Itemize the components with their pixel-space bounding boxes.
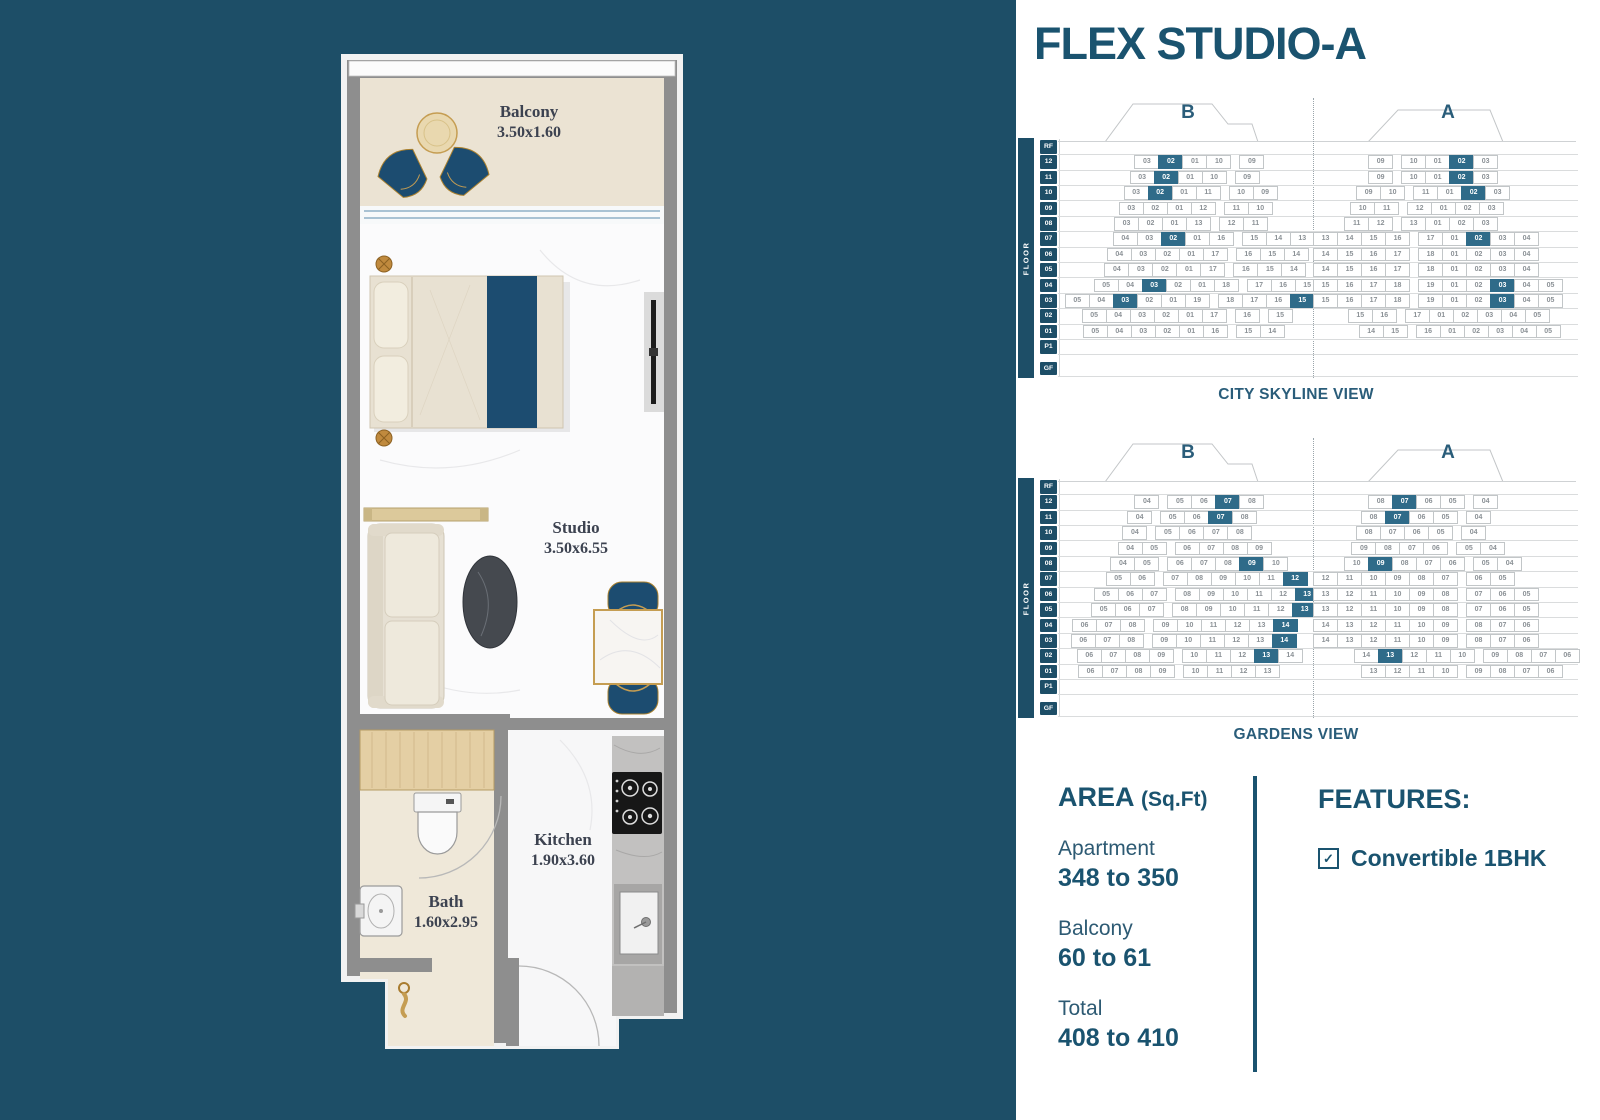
unit-cell: 11 <box>1244 603 1269 617</box>
unit-cell: 05 <box>1538 294 1563 308</box>
unit-cell: 12 <box>1225 619 1250 633</box>
unit-cell: 08 <box>1466 634 1491 648</box>
tower-b-units-row: 050607080910111213 <box>1094 588 1319 602</box>
unit-cell: 14 <box>1266 232 1291 246</box>
unit-cell: 12 <box>1337 588 1362 602</box>
unit-cell: 12 <box>1361 619 1386 633</box>
unit-cell: 06 <box>1404 526 1429 540</box>
unit-cell: 02 <box>1453 309 1478 323</box>
unit-cell: 03 <box>1490 248 1515 262</box>
tower-a-units-row: 1415160102030405 <box>1359 325 1560 339</box>
unit-cell: 15 <box>1236 325 1261 339</box>
area-heading: AREA (Sq.Ft) <box>1058 782 1208 813</box>
unit-cell: 01 <box>1440 325 1465 339</box>
unit-gap <box>1409 263 1418 277</box>
floor-label: 04 <box>1040 279 1057 293</box>
unit-gap <box>1392 171 1401 185</box>
tower-b-units-row: 030201121110 <box>1119 202 1272 216</box>
unit-cell: 04 <box>1512 325 1537 339</box>
tower-a-units-row: 091011010203 <box>1356 186 1509 200</box>
tower-b-units-row: 0403020117161514 <box>1104 263 1305 277</box>
floor-label: 10 <box>1040 186 1057 200</box>
unit-cell-highlighted: 09 <box>1368 557 1393 571</box>
unit-gap <box>1227 248 1236 262</box>
unit-cell: 05 <box>1456 542 1481 556</box>
unit-cell-highlighted: 03 <box>1113 294 1138 308</box>
unit-gap <box>1474 649 1483 663</box>
unit-cell: 08 <box>1466 619 1491 633</box>
unit-cell: 04 <box>1106 309 1131 323</box>
unit-cell: 07 <box>1095 634 1120 648</box>
unit-cell: 17 <box>1200 263 1225 277</box>
floor-gridline <box>1058 694 1578 695</box>
unit-cell: 12 <box>1407 202 1432 216</box>
unit-cell: 03 <box>1114 217 1139 231</box>
unit-cell: 11 <box>1243 217 1268 231</box>
tower-a-units-row: 1312111009080706 <box>1361 665 1562 679</box>
unit-cell-highlighted: 02 <box>1161 232 1186 246</box>
unit-cell: 16 <box>1361 248 1386 262</box>
unit-cell: 01 <box>1172 186 1197 200</box>
tower-b-units-row: 030201111009 <box>1124 186 1277 200</box>
unit-cell: 03 <box>1490 263 1515 277</box>
unit-cell: 08 <box>1227 526 1252 540</box>
unit-cell-highlighted: 02 <box>1154 171 1179 185</box>
unit-cell-highlighted: 02 <box>1466 232 1491 246</box>
unit-cell: 01 <box>1425 171 1450 185</box>
unit-cell: 07 <box>1514 665 1539 679</box>
floor-label: 02 <box>1040 309 1057 323</box>
unit-cell: 09 <box>1483 649 1508 663</box>
unit-cell: 03 <box>1131 325 1156 339</box>
unit-cell: 17 <box>1247 279 1272 293</box>
tower-a-units-row: 141312111009080706 <box>1354 649 1579 663</box>
unit-cell: 10 <box>1361 572 1386 586</box>
unit-cell: 06 <box>1078 665 1103 679</box>
unit-gap <box>1392 155 1401 169</box>
unit-cell: 12 <box>1385 665 1410 679</box>
balcony-table <box>417 113 457 153</box>
unit-gap <box>1452 526 1461 540</box>
unit-cell: 07 <box>1399 542 1424 556</box>
closet <box>360 730 494 790</box>
unit-cell: 13 <box>1290 232 1315 246</box>
tower-b-units-row: 0506070809101112 <box>1106 572 1307 586</box>
unit-cell: 14 <box>1337 232 1362 246</box>
unit-cell: 10 <box>1248 202 1273 216</box>
unit-cell: 06 <box>1538 665 1563 679</box>
area-item-label: Apartment <box>1058 837 1208 861</box>
unit-cell: 09 <box>1385 572 1410 586</box>
floor-label: 02 <box>1040 649 1057 663</box>
unit-cell: 07 <box>1466 603 1491 617</box>
unit-gap <box>1457 511 1466 525</box>
floor-label: 08 <box>1040 217 1057 231</box>
tower-b-units-row: 030201131211 <box>1114 217 1267 231</box>
area-heading-text: AREA <box>1058 782 1134 812</box>
feature-label: Convertible 1BHK <box>1351 845 1547 872</box>
floor-axis-label: FLOOR <box>1022 581 1031 615</box>
unit-cell: 12 <box>1191 202 1216 216</box>
unit-cell: 06 <box>1071 634 1096 648</box>
unit-gap <box>1163 603 1172 617</box>
pillow <box>374 356 408 422</box>
features-heading: FEATURES: <box>1318 784 1547 815</box>
tower-a-units-row: 0910010203 <box>1368 171 1497 185</box>
unit-cell: 07 <box>1101 649 1126 663</box>
unit-cell: 09 <box>1466 665 1491 679</box>
area-item-total: Total 408 to 410 <box>1058 997 1208 1053</box>
unit-cell: 10 <box>1385 603 1410 617</box>
unit-cell: 16 <box>1209 232 1234 246</box>
unit-cell: 13 <box>1249 619 1274 633</box>
unit-cell: 10 <box>1229 186 1254 200</box>
unit-gap <box>1409 294 1418 308</box>
kitchen-dims: 1.90x3.60 <box>531 852 595 869</box>
unit-gap <box>1210 217 1219 231</box>
unit-cell: 10 <box>1183 665 1208 679</box>
stacking-diagram: BAFLOORRF1204050607080807060504110405060… <box>1016 480 1596 750</box>
unit-cell: 14 <box>1359 325 1384 339</box>
unit-cell: 04 <box>1480 542 1505 556</box>
unit-gap <box>1259 309 1268 323</box>
unit-cell: 10 <box>1380 186 1405 200</box>
stacking-diagram: BAFLOORRF1203020110090910010203110302011… <box>1016 140 1596 410</box>
section-divider <box>1253 776 1257 1072</box>
unit-cell: 03 <box>1124 186 1149 200</box>
unit-cell: 03 <box>1119 202 1144 216</box>
unit-gap <box>1230 155 1239 169</box>
unit-cell: 11 <box>1344 217 1369 231</box>
bed-runner <box>487 276 537 428</box>
unit-cell: 05 <box>1525 309 1550 323</box>
unit-cell: 09 <box>1239 155 1264 169</box>
unit-cell: 09 <box>1409 588 1434 602</box>
unit-cell: 04 <box>1113 232 1138 246</box>
page-title: FLEX STUDIO-A <box>1034 18 1366 70</box>
tower-a-units-row: 0807060504 <box>1368 495 1497 509</box>
unit-cell: 08 <box>1490 665 1515 679</box>
unit-cell: 04 <box>1466 511 1491 525</box>
unit-cell: 08 <box>1232 511 1257 525</box>
unit-gap <box>1227 325 1236 339</box>
unit-cell: 16 <box>1266 294 1291 308</box>
balcony-label: Balcony <box>500 102 559 121</box>
tower-label: A <box>1420 102 1476 124</box>
unit-gap <box>1158 557 1167 571</box>
unit-gap <box>1226 309 1235 323</box>
unit-cell: 10 <box>1450 649 1475 663</box>
unit-cell: 06 <box>1440 557 1465 571</box>
sconce-icon <box>376 256 392 272</box>
unit-gap <box>1209 294 1218 308</box>
unit-cell: 02 <box>1464 325 1489 339</box>
unit-cell: 13 <box>1313 232 1338 246</box>
tower-b-units-row: 050607080910111213 <box>1091 603 1316 617</box>
unit-cell: 04 <box>1110 557 1135 571</box>
unit-cell: 06 <box>1466 572 1491 586</box>
unit-cell: 14 <box>1260 325 1285 339</box>
unit-cell: 10 <box>1344 557 1369 571</box>
unit-gap <box>1464 495 1473 509</box>
unit-cell: 09 <box>1196 603 1221 617</box>
unit-cell: 01 <box>1178 309 1203 323</box>
unit-cell: 03 <box>1137 232 1162 246</box>
area-item-value: 408 to 410 <box>1058 1024 1208 1053</box>
unit-cell: 17 <box>1418 232 1443 246</box>
unit-cell: 04 <box>1127 511 1152 525</box>
unit-cell: 11 <box>1259 572 1284 586</box>
unit-cell: 05 <box>1514 603 1539 617</box>
grid-left-line <box>1059 479 1060 716</box>
area-item-apartment: Apartment 348 to 350 <box>1058 837 1208 893</box>
tower-a-units-row: 141516171801020304 <box>1313 263 1538 277</box>
tower-a-units-row: 111213010203 <box>1344 217 1497 231</box>
unit-cell: 04 <box>1089 294 1114 308</box>
unit-cell: 01 <box>1179 325 1204 339</box>
unit-cell: 12 <box>1231 665 1256 679</box>
unit-cell: 14 <box>1313 619 1338 633</box>
unit-cell: 10 <box>1409 619 1434 633</box>
unit-cell: 09 <box>1368 171 1393 185</box>
unit-cell: 16 <box>1337 294 1362 308</box>
tower-b-units-row: 050403020118171615 <box>1094 279 1319 293</box>
diagram-caption: GARDENS VIEW <box>1036 726 1556 744</box>
unit-cell: 08 <box>1172 603 1197 617</box>
tower-a-units-row: 1516170102030405 <box>1348 309 1549 323</box>
unit-cell: 02 <box>1155 325 1180 339</box>
unit-cell-highlighted: 03 <box>1490 294 1515 308</box>
unit-cell: 04 <box>1118 279 1143 293</box>
unit-cell: 01 <box>1179 248 1204 262</box>
unit-gap <box>1398 202 1407 216</box>
unit-cell: 02 <box>1166 279 1191 293</box>
unit-cell: 16 <box>1203 325 1228 339</box>
floor-label: 11 <box>1040 171 1057 185</box>
unit-cell: 08 <box>1409 572 1434 586</box>
floor-label: 01 <box>1040 665 1057 679</box>
unit-gap <box>1238 279 1247 293</box>
unit-gap <box>1457 572 1466 586</box>
unit-cell: 19 <box>1418 279 1443 293</box>
unit-cell: 11 <box>1207 665 1232 679</box>
unit-cell: 11 <box>1337 572 1362 586</box>
tower-b-units-row: 0405060708 <box>1134 495 1263 509</box>
unit-cell: 02 <box>1466 294 1491 308</box>
unit-cell: 16 <box>1236 248 1261 262</box>
tower-b-units-row: 0607080910111213 <box>1078 665 1279 679</box>
kitchen-cabinet <box>612 966 664 1016</box>
unit-cell: 06 <box>1191 495 1216 509</box>
tower-a-units-row: 131211100908070605 <box>1313 588 1538 602</box>
pillow <box>374 282 408 348</box>
unit-cell: 01 <box>1161 294 1186 308</box>
sliding-window-band <box>360 206 664 224</box>
unit-cell: 12 <box>1271 588 1296 602</box>
unit-cell: 08 <box>1356 526 1381 540</box>
unit-cell: 10 <box>1263 557 1288 571</box>
unit-gap <box>1409 248 1418 262</box>
unit-cell: 02 <box>1466 263 1491 277</box>
unit-cell: 01 <box>1178 171 1203 185</box>
unit-cell: 04 <box>1514 263 1539 277</box>
unit-cell: 11 <box>1426 649 1451 663</box>
unit-cell: 14 <box>1354 649 1379 663</box>
unit-cell: 05 <box>1440 495 1465 509</box>
unit-cell: 08 <box>1126 665 1151 679</box>
unit-cell: 09 <box>1150 665 1175 679</box>
floor-label: 08 <box>1040 557 1057 571</box>
tower-b-units-row: 0405060708 <box>1127 511 1256 525</box>
floor-label: 12 <box>1040 155 1057 169</box>
tower-a-units-row: 15161718190102030405 <box>1313 294 1562 308</box>
floor-label: GF <box>1040 702 1057 716</box>
unit-cell: 04 <box>1107 248 1132 262</box>
area-heading-unit: (Sq.Ft) <box>1141 788 1207 811</box>
unit-cell: 07 <box>1466 588 1491 602</box>
unit-cell: 13 <box>1361 665 1386 679</box>
kitchen-label: Kitchen <box>534 830 592 849</box>
tower-a-units-row: 131415161701020304 <box>1313 232 1538 246</box>
unit-cell: 03 <box>1131 248 1156 262</box>
unit-cell: 07 <box>1102 665 1127 679</box>
unit-cell: 08 <box>1375 542 1400 556</box>
unit-cell-highlighted: 02 <box>1158 155 1183 169</box>
unit-cell: 05 <box>1538 279 1563 293</box>
unit-cell: 07 <box>1490 634 1515 648</box>
unit-cell: 09 <box>1409 603 1434 617</box>
unit-cell: 05 <box>1094 588 1119 602</box>
floor-label: RF <box>1040 480 1057 494</box>
tower-b-units-row: 040506070809 <box>1118 542 1271 556</box>
unit-cell: 13 <box>1313 588 1338 602</box>
unit-cell: 15 <box>1337 263 1362 277</box>
bath-label: Bath <box>429 892 465 911</box>
floor-label: 07 <box>1040 232 1057 246</box>
unit-cell: 12 <box>1402 649 1427 663</box>
tower-a-units-row: 0807060504 <box>1356 526 1485 540</box>
wash-basin <box>355 886 402 936</box>
tower-a-units-row: 0807060504 <box>1361 511 1490 525</box>
unit-cell: 10 <box>1235 572 1260 586</box>
dining-table <box>594 610 662 684</box>
unit-cell: 09 <box>1368 155 1393 169</box>
floor-label: 11 <box>1040 511 1057 525</box>
unit-cell: 10 <box>1176 634 1201 648</box>
unit-cell: 06 <box>1072 619 1097 633</box>
unit-gap <box>1158 495 1167 509</box>
unit-cell: 03 <box>1473 217 1498 231</box>
balcony-dims: 3.50x1.60 <box>497 124 561 141</box>
unit-cell: 09 <box>1253 186 1278 200</box>
unit-cell: 05 <box>1134 557 1159 571</box>
unit-cell-highlighted: 13 <box>1378 649 1403 663</box>
unit-cell: 10 <box>1202 171 1227 185</box>
unit-cell: 01 <box>1442 263 1467 277</box>
floor-label: 09 <box>1040 202 1057 216</box>
tower-a-units-row: 0910010203 <box>1368 155 1497 169</box>
unit-cell: 15 <box>1260 248 1285 262</box>
floor-label: 06 <box>1040 588 1057 602</box>
floor-label: 05 <box>1040 263 1057 277</box>
unit-cell: 14 <box>1278 649 1303 663</box>
unit-cell: 07 <box>1139 603 1164 617</box>
floor-axis: FLOOR <box>1018 478 1034 718</box>
unit-cell-highlighted: 07 <box>1208 511 1233 525</box>
unit-cell: 16 <box>1361 263 1386 277</box>
floor-label: P1 <box>1040 680 1057 694</box>
unit-cell: 06 <box>1416 495 1441 509</box>
studio-label: Studio <box>552 518 599 537</box>
unit-cell: 08 <box>1368 495 1393 509</box>
unit-gap <box>1154 572 1163 586</box>
unit-cell: 10 <box>1206 155 1231 169</box>
unit-gap <box>1457 619 1466 633</box>
tower-a-units-row: 141312111009080706 <box>1313 634 1538 648</box>
unit-gap <box>1447 542 1456 556</box>
unit-cell: 03 <box>1488 325 1513 339</box>
unit-cell: 09 <box>1152 634 1177 648</box>
unit-cell: 18 <box>1218 294 1243 308</box>
unit-cell: 05 <box>1433 511 1458 525</box>
unit-cell: 16 <box>1271 279 1296 293</box>
unit-cell: 06 <box>1175 542 1200 556</box>
unit-cell: 13 <box>1248 634 1273 648</box>
unit-cell: 04 <box>1514 294 1539 308</box>
unit-cell-highlighted: 02 <box>1449 171 1474 185</box>
unit-gap <box>1143 634 1152 648</box>
parapet-band <box>349 61 675 76</box>
unit-cell: 18 <box>1418 263 1443 277</box>
unit-cell: 06 <box>1555 649 1580 663</box>
unit-cell: 18 <box>1385 294 1410 308</box>
unit-cell: 11 <box>1196 186 1221 200</box>
unit-cell: 05 <box>1142 542 1167 556</box>
wardrobe-mirror <box>644 292 664 412</box>
sofa <box>368 524 444 708</box>
floor-label: 04 <box>1040 619 1057 633</box>
unit-cell: 05 <box>1106 572 1131 586</box>
unit-cell: 05 <box>1082 309 1107 323</box>
floor-label: 03 <box>1040 294 1057 308</box>
unit-cell: 01 <box>1442 294 1467 308</box>
toilet <box>414 793 461 854</box>
tower-b-units-row: 060708091011121314 <box>1071 634 1296 648</box>
unit-cell: 17 <box>1385 248 1410 262</box>
unit-cell: 03 <box>1130 309 1155 323</box>
unit-gap <box>1173 649 1182 663</box>
unit-cell: 11 <box>1247 588 1272 602</box>
unit-cell: 02 <box>1466 279 1491 293</box>
unit-cell: 12 <box>1224 634 1249 648</box>
unit-cell: 08 <box>1175 588 1200 602</box>
tower-a-units-row: 15161718190102030405 <box>1313 279 1562 293</box>
unit-cell: 09 <box>1153 619 1178 633</box>
unit-cell: 07 <box>1203 526 1228 540</box>
unit-cell: 12 <box>1337 603 1362 617</box>
unit-cell: 08 <box>1361 511 1386 525</box>
unit-cell: 04 <box>1514 279 1539 293</box>
floor-axis: FLOOR <box>1018 138 1034 378</box>
unit-cell: 16 <box>1385 232 1410 246</box>
area-item-label: Balcony <box>1058 917 1208 941</box>
unit-cell-highlighted: 02 <box>1449 155 1474 169</box>
unit-cell: 08 <box>1433 588 1458 602</box>
unit-cell: 02 <box>1466 248 1491 262</box>
unit-cell: 04 <box>1497 557 1522 571</box>
unit-gap <box>1224 263 1233 277</box>
unit-cell: 08 <box>1392 557 1417 571</box>
